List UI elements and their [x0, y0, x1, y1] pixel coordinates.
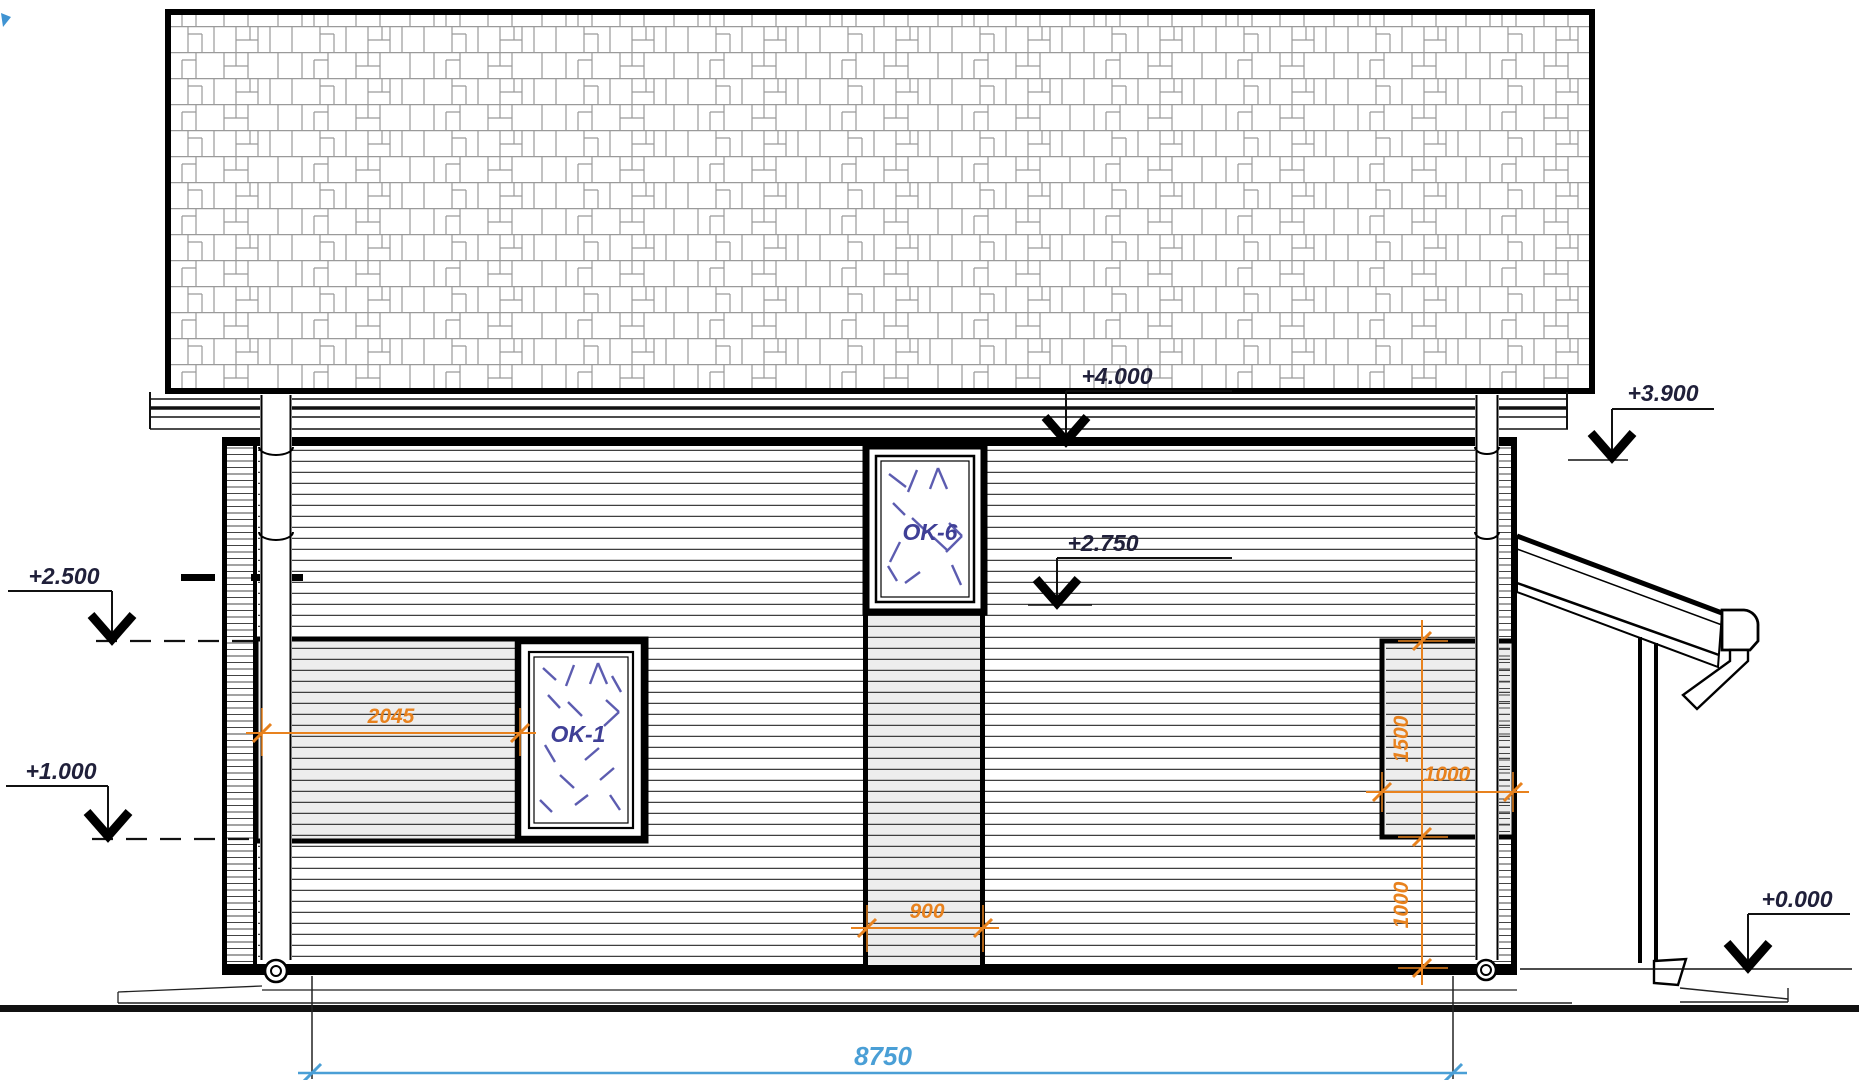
- window-ok6: OK-6: [866, 446, 984, 612]
- level-marker-1000: +1.000: [6, 758, 129, 836]
- level-label-4000: +4.000: [1082, 363, 1153, 389]
- drawing-canvas: OK-6 OK-1: [0, 0, 1859, 1080]
- eave-fascia: [150, 392, 1568, 429]
- window-label-ok1: OK-1: [551, 721, 606, 747]
- dim-label-1000-sill: 1000: [1390, 881, 1413, 928]
- roof: [168, 12, 1592, 391]
- level-label-3900: +3.900: [1628, 380, 1699, 406]
- porch: [1517, 536, 1758, 985]
- gutter-end-cap: [1722, 610, 1758, 650]
- foundation-apron: [118, 986, 1788, 1003]
- wall-bottom-band: [222, 964, 1517, 975]
- dim-label-1500: 1500: [1390, 715, 1413, 762]
- downspout-left: [259, 395, 293, 982]
- cursor-artifact: [1, 13, 11, 27]
- level-marker-2500: +2.500: [8, 563, 133, 639]
- window-ok1: OK-1: [518, 641, 644, 839]
- window-label-ok6: OK-6: [903, 519, 958, 545]
- level-label-1000: +1.000: [26, 758, 97, 784]
- dim-label-900: 900: [909, 900, 944, 923]
- level-marker-0000: +0.000: [1520, 886, 1852, 969]
- overall-dimension-8750: 8750: [298, 976, 1467, 1080]
- elevation-drawing: OK-6 OK-1: [0, 0, 1859, 1080]
- level-label-0000: +0.000: [1762, 886, 1833, 912]
- dim-label-2045: 2045: [367, 705, 415, 728]
- level-label-2500: +2.500: [29, 563, 100, 589]
- corner-board-left: [227, 440, 253, 972]
- overall-dim-label: 8750: [854, 1041, 912, 1071]
- porch-post: [1638, 637, 1642, 963]
- downspout-right: [1475, 395, 1499, 980]
- ground-line: [0, 1005, 1859, 1012]
- roof-shingle-hatch: [168, 12, 1592, 391]
- post-base: [1654, 959, 1686, 985]
- dim-label-1000-width: 1000: [1424, 763, 1471, 786]
- level-label-2750: +2.750: [1068, 530, 1139, 556]
